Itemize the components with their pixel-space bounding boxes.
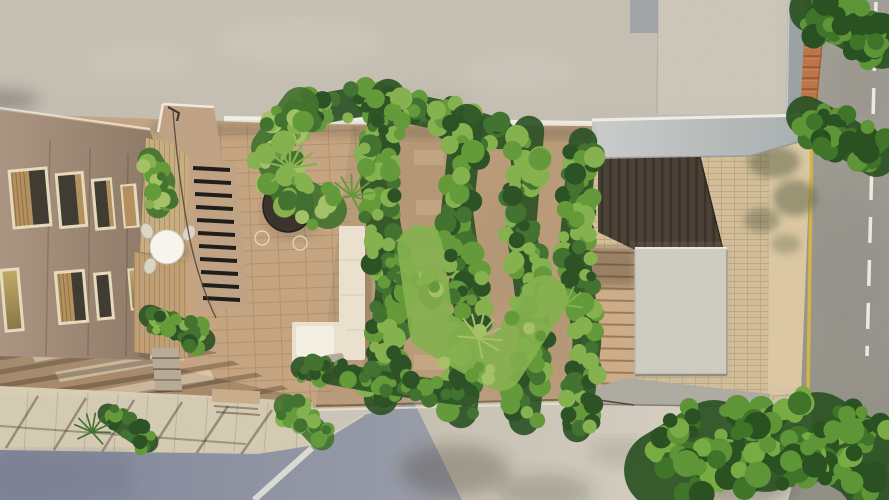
window (55, 171, 89, 229)
parapet-step (630, 0, 658, 33)
pad-texture (635, 248, 727, 375)
bench-slab (212, 389, 261, 404)
stone-steps (152, 348, 182, 391)
round-table (150, 230, 184, 264)
site-plan-rendering (0, 0, 889, 500)
left-building-facade (0, 108, 157, 360)
window (7, 166, 52, 229)
window (54, 269, 90, 325)
sofa-cushion (296, 326, 334, 356)
foliage-band-tree-bottom-right (645, 386, 889, 500)
concrete-pad (635, 248, 727, 375)
street-dark-corner (0, 452, 130, 500)
deck-planks (134, 252, 188, 358)
rendered-image (0, 0, 889, 500)
